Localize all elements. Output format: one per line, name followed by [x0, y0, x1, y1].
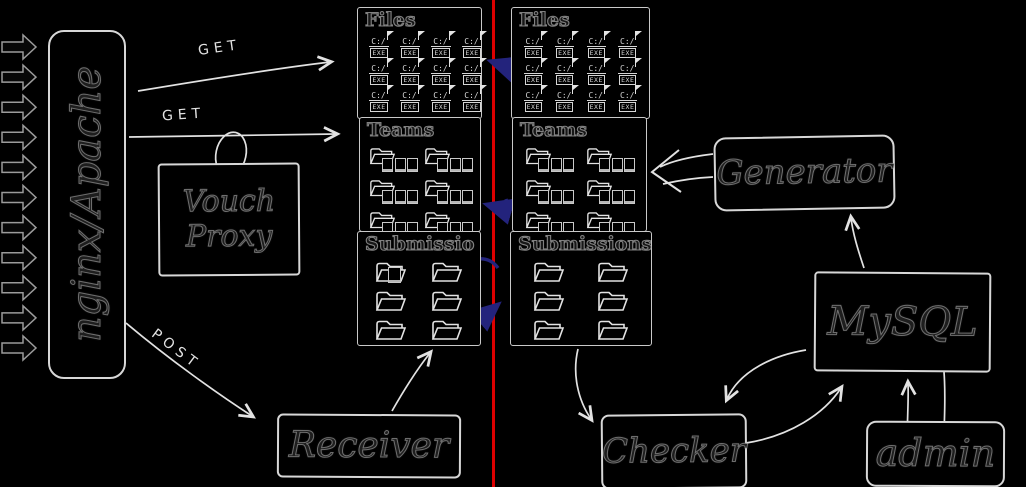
exe-drive-text: C:/ [526, 64, 540, 73]
teams-panel-left: Teams [359, 117, 481, 232]
folder-glyph [597, 260, 629, 284]
architecture-diagram: nginx/Apache Vouch Proxy Receiver Genera… [0, 0, 1026, 487]
node-receiver: Receiver [277, 414, 461, 479]
exe-drive-text: C:/ [557, 64, 571, 73]
team-binaries-icon [538, 190, 574, 204]
flag-icon [480, 31, 487, 40]
flag-icon [449, 85, 456, 94]
flag-icon [635, 58, 642, 67]
exe-label-text: EXE [588, 48, 605, 58]
submissions-panel-left: Submissio [357, 231, 481, 346]
exe-drive-text: C:/ [464, 37, 478, 46]
folder-icon [533, 318, 565, 342]
exe-file-icon: C:/EXE [616, 90, 640, 112]
exe-label-text: EXE [556, 48, 573, 58]
arrow-receiver-to-submissions [392, 353, 430, 411]
exe-file-icon: C:/EXE [429, 36, 453, 58]
node-generator-label: Generator [716, 152, 893, 194]
node-checker: Checker [601, 413, 748, 487]
exe-file-icon: C:/EXE [460, 36, 484, 58]
team-folder-icon [586, 178, 634, 205]
submissions-icon-grid-left [358, 255, 480, 346]
flag-icon [541, 58, 548, 67]
team-folder-icon [424, 146, 472, 173]
folder-icon [533, 289, 565, 313]
arrow-get-teams [129, 134, 336, 137]
team-binaries-icon [599, 190, 635, 204]
arrow-generator-to-teams-head [652, 150, 681, 192]
exe-drive-text: C:/ [371, 64, 385, 73]
submissions-panel-right: Submissions [510, 231, 652, 346]
request-arrow [2, 125, 36, 149]
flag-icon [572, 85, 579, 94]
folder-icon [597, 318, 629, 342]
request-arrow [2, 186, 36, 210]
exe-drive-text: C:/ [526, 37, 540, 46]
exe-file-icon: C:/EXE [398, 90, 422, 112]
exe-file-icon: C:/EXE [553, 63, 577, 85]
folder-glyph [431, 260, 463, 284]
exe-file-icon: C:/EXE [429, 90, 453, 112]
exe-label-text: EXE [588, 75, 605, 85]
teams-panel-right-title: Teams [513, 118, 646, 141]
exe-drive-text: C:/ [402, 91, 416, 100]
sync-teams-arrow [492, 199, 507, 208]
exe-drive-text: C:/ [526, 91, 540, 100]
folder-glyph [533, 318, 565, 342]
team-binaries-icon [437, 158, 473, 172]
exe-file-icon: C:/EXE [367, 36, 391, 58]
team-folder-icon [369, 146, 417, 173]
exe-file-icon: C:/EXE [584, 63, 608, 85]
team-folder-icon [424, 178, 472, 205]
node-generator: Generator [713, 134, 895, 211]
flag-icon [418, 58, 425, 67]
teams-panel-right: Teams [512, 117, 647, 232]
exe-file-icon: C:/EXE [398, 36, 422, 58]
exe-mini-file-icon [388, 267, 401, 283]
folder-glyph [597, 318, 629, 342]
flag-icon [604, 85, 611, 94]
exe-drive-text: C:/ [620, 64, 634, 73]
exe-drive-text: C:/ [589, 37, 603, 46]
exe-file-icon: C:/EXE [429, 63, 453, 85]
exe-file-icon: C:/EXE [460, 63, 484, 85]
flag-icon [480, 85, 487, 94]
exe-label-text: EXE [619, 102, 636, 112]
submissions-panel-right-title: Submissions [511, 232, 651, 255]
folder-icon [431, 318, 463, 342]
exe-label-text: EXE [619, 48, 636, 58]
team-binaries-icon [382, 190, 418, 204]
exe-drive-text: C:/ [402, 64, 416, 73]
team-folder-icon [586, 146, 634, 173]
exe-label-text: EXE [463, 48, 480, 58]
node-gateway: nginx/Apache [48, 30, 126, 379]
files-panel-right: Files C:/EXEC:/EXEC:/EXEC:/EXEC:/EXEC:/E… [511, 7, 650, 119]
node-vouch-proxy: Vouch Proxy [158, 163, 301, 277]
team-folder-icon [525, 178, 573, 205]
team-binaries-icon [538, 158, 574, 172]
node-receiver-label: Receiver [289, 425, 449, 467]
submissions-icon-grid-right [511, 255, 651, 346]
exe-file-icon: C:/EXE [553, 36, 577, 58]
exe-drive-text: C:/ [433, 37, 447, 46]
arrow-mysql-to-generator [851, 218, 864, 268]
folder-icon [597, 260, 629, 284]
exe-label-text: EXE [401, 75, 418, 85]
teams-panel-left-title: Teams [360, 118, 480, 141]
flag-icon [541, 85, 548, 94]
exe-label-text: EXE [619, 75, 636, 85]
flag-icon [449, 58, 456, 67]
exe-label-text: EXE [401, 102, 418, 112]
exe-label-text: EXE [370, 102, 387, 112]
exe-label-text: EXE [463, 75, 480, 85]
request-arrow [2, 35, 36, 59]
team-folder-icon [369, 178, 417, 205]
exe-file-icon: C:/EXE [521, 90, 545, 112]
node-gateway-label: nginx/Apache [64, 66, 110, 342]
request-arrow [2, 65, 36, 89]
exe-file-icon: C:/EXE [584, 90, 608, 112]
flag-icon [635, 85, 642, 94]
exe-label-text: EXE [432, 48, 449, 58]
node-checker-label: Checker [602, 431, 746, 471]
exe-drive-text: C:/ [589, 64, 603, 73]
flag-icon [418, 31, 425, 40]
flag-icon [572, 58, 579, 67]
exe-file-icon: C:/EXE [584, 36, 608, 58]
exe-file-icon: C:/EXE [521, 36, 545, 58]
exe-drive-text: C:/ [464, 91, 478, 100]
flag-icon [480, 58, 487, 67]
node-mysql-label: MySQL [827, 298, 978, 345]
teams-icon-grid-left [360, 141, 480, 241]
exe-file-icon: C:/EXE [367, 63, 391, 85]
request-arrow [2, 155, 36, 179]
request-arrow [2, 306, 36, 330]
exe-drive-text: C:/ [371, 37, 385, 46]
flag-icon [418, 85, 425, 94]
flag-icon [635, 31, 642, 40]
exe-drive-text: C:/ [620, 91, 634, 100]
exe-label-text: EXE [588, 102, 605, 112]
exe-label-text: EXE [556, 75, 573, 85]
folder-icon [431, 289, 463, 313]
node-admin-label: admin [876, 432, 996, 476]
exe-label-text: EXE [525, 48, 542, 58]
exe-file-icon: C:/EXE [616, 63, 640, 85]
team-folder-icon [525, 146, 573, 173]
teams-icon-grid-right [513, 141, 646, 241]
flag-icon [572, 31, 579, 40]
folder-glyph [375, 318, 407, 342]
exe-drive-text: C:/ [464, 64, 478, 73]
node-mysql: MySQL [814, 271, 992, 372]
request-arrow [2, 216, 36, 240]
flag-icon [387, 31, 394, 40]
exe-label-text: EXE [401, 48, 418, 58]
folder-icon [375, 289, 407, 313]
flag-icon [387, 85, 394, 94]
folder-icon [375, 260, 407, 284]
files-icon-grid-right: C:/EXEC:/EXEC:/EXEC:/EXEC:/EXEC:/EXEC:/E… [512, 31, 649, 116]
arrow-generator-to-teams-line1 [660, 154, 713, 167]
get-teams-label: GET [161, 106, 205, 125]
node-admin: admin [866, 421, 1005, 487]
exe-label-text: EXE [370, 48, 387, 58]
exe-drive-text: C:/ [557, 91, 571, 100]
exe-file-icon: C:/EXE [616, 36, 640, 58]
files-panel-left: Files C:/EXEC:/EXEC:/EXEC:/EXEC:/EXEC:/E… [357, 7, 482, 119]
folder-icon [533, 260, 565, 284]
folder-glyph [533, 260, 565, 284]
folder-icon [431, 260, 463, 284]
exe-drive-text: C:/ [433, 64, 447, 73]
request-arrow [2, 276, 36, 300]
exe-drive-text: C:/ [402, 37, 416, 46]
team-binaries-icon [599, 158, 635, 172]
folder-icon [597, 289, 629, 313]
folder-icon [375, 318, 407, 342]
files-panel-left-title: Files [358, 8, 481, 31]
exe-label-text: EXE [432, 102, 449, 112]
exe-file-icon: C:/EXE [460, 90, 484, 112]
flag-icon [541, 31, 548, 40]
arrow-mysql-to-checker [727, 350, 806, 399]
flag-icon [449, 31, 456, 40]
folder-glyph [375, 289, 407, 313]
arrow-submissions-to-checker [576, 349, 591, 419]
exe-drive-text: C:/ [371, 91, 385, 100]
exe-label-text: EXE [525, 75, 542, 85]
request-arrow [2, 246, 36, 270]
exe-label-text: EXE [463, 102, 480, 112]
arrow-get-files [138, 62, 330, 91]
node-vouch-proxy-label: Vouch Proxy [174, 185, 284, 255]
exe-drive-text: C:/ [433, 91, 447, 100]
submissions-panel-left-title: Submissio [358, 232, 480, 255]
exe-file-icon: C:/EXE [521, 63, 545, 85]
files-icon-grid-left: C:/EXEC:/EXEC:/EXEC:/EXEC:/EXEC:/EXEC:/E… [358, 31, 481, 116]
request-arrow [2, 95, 36, 119]
exe-label-text: EXE [432, 75, 449, 85]
folder-glyph [431, 318, 463, 342]
exe-label-text: EXE [370, 75, 387, 85]
flag-icon [604, 58, 611, 67]
folder-glyph [597, 289, 629, 313]
flag-icon [604, 31, 611, 40]
arrow-generator-to-teams-line2 [663, 177, 713, 184]
team-binaries-icon [437, 190, 473, 204]
folder-glyph [431, 289, 463, 313]
exe-file-icon: C:/EXE [553, 90, 577, 112]
exe-file-icon: C:/EXE [367, 90, 391, 112]
exe-label-text: EXE [556, 102, 573, 112]
exe-drive-text: C:/ [620, 37, 634, 46]
request-arrow [2, 336, 36, 360]
exe-drive-text: C:/ [589, 91, 603, 100]
incoming-request-arrows [2, 35, 36, 360]
arrow-checker-to-mysql [746, 388, 841, 443]
exe-label-text: EXE [525, 102, 542, 112]
flag-icon [387, 58, 394, 67]
exe-file-icon: C:/EXE [398, 63, 422, 85]
team-binaries-icon [382, 158, 418, 172]
files-panel-right-title: Files [512, 8, 649, 31]
exe-drive-text: C:/ [557, 37, 571, 46]
folder-glyph [533, 289, 565, 313]
